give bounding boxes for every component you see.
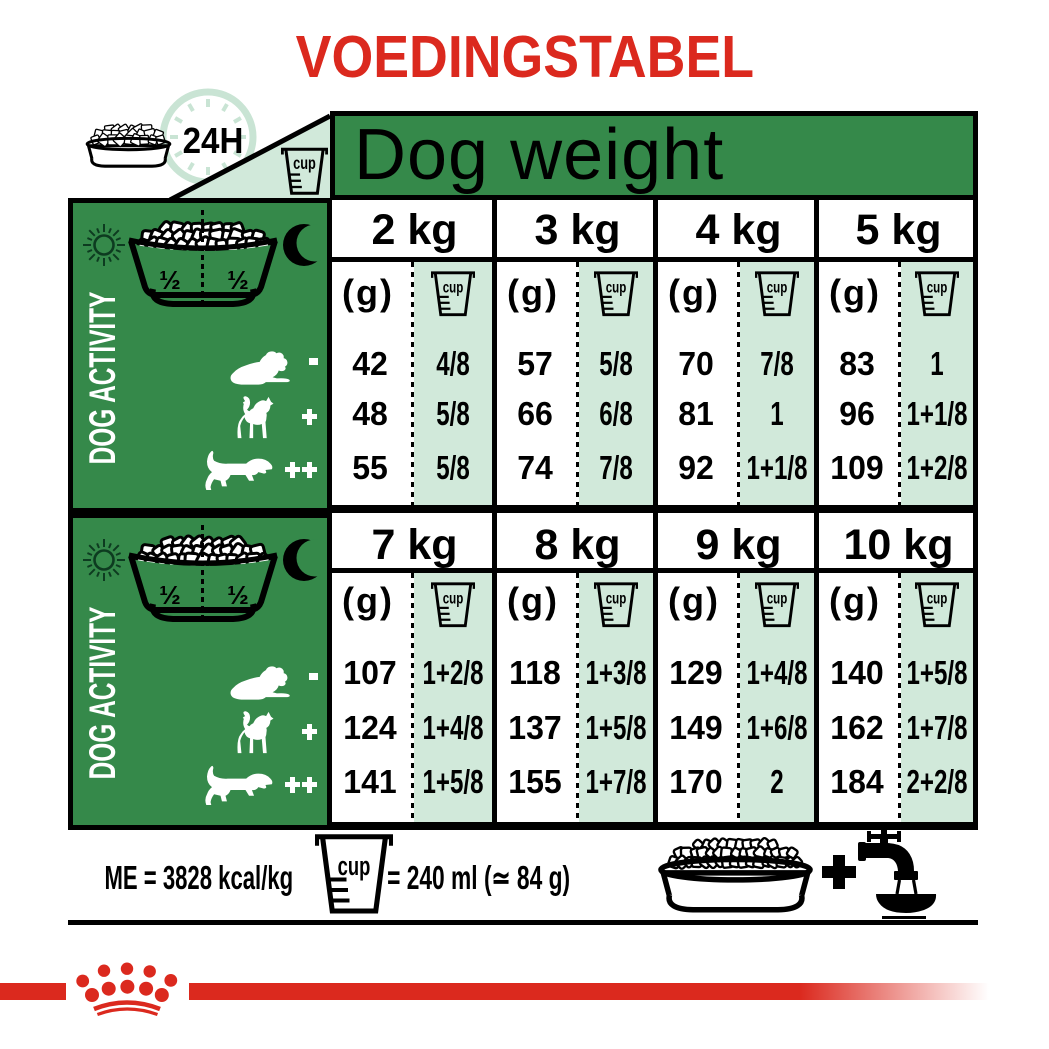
svg-text:½: ½ [227, 580, 249, 610]
svg-text:cup: cup [443, 589, 464, 607]
svg-text:½: ½ [159, 265, 181, 295]
svg-text:cup: cup [293, 154, 316, 174]
svg-text:½: ½ [159, 580, 181, 610]
svg-text:cup: cup [927, 589, 948, 607]
svg-text:cup: cup [927, 278, 948, 296]
svg-text:cup: cup [606, 278, 627, 296]
svg-text:cup: cup [443, 278, 464, 296]
svg-text:cup: cup [606, 589, 627, 607]
svg-text:cup: cup [767, 589, 788, 607]
svg-text:cup: cup [767, 278, 788, 296]
svg-text:½: ½ [227, 265, 249, 295]
